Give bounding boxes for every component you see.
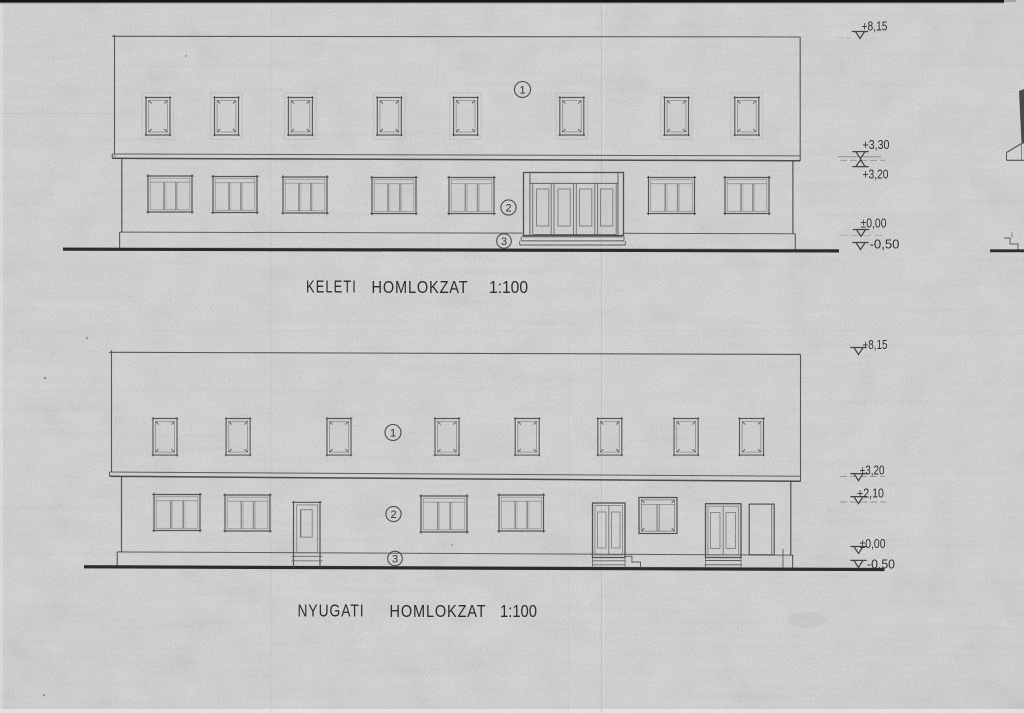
svg-text:NYUGATI: NYUGATI (298, 601, 365, 621)
svg-text:-0,50: -0,50 (867, 556, 895, 571)
svg-text:±0,00: ±0,00 (861, 215, 887, 230)
svg-text:-0,50: -0,50 (870, 237, 900, 252)
svg-text:3: 3 (501, 236, 507, 248)
svg-text:KELETI: KELETI (306, 277, 357, 297)
svg-text:1:100: 1:100 (500, 601, 537, 621)
svg-text:3: 3 (392, 553, 398, 565)
svg-text:1: 1 (390, 427, 396, 439)
svg-text:2: 2 (390, 509, 396, 521)
svg-text:HOMLOKZAT: HOMLOKZAT (372, 277, 469, 297)
svg-text:1:100: 1:100 (489, 277, 528, 297)
svg-text:+2,10: +2,10 (857, 486, 884, 501)
svg-text:1: 1 (519, 84, 525, 96)
svg-text:+8,15: +8,15 (863, 337, 888, 352)
svg-text:+3,20: +3,20 (863, 167, 889, 182)
svg-text:+8,15: +8,15 (862, 19, 888, 34)
svg-text:+3,20: +3,20 (860, 463, 885, 478)
svg-text:2: 2 (505, 202, 511, 214)
svg-text:+3,30: +3,30 (863, 137, 890, 152)
svg-text:±0,00: ±0,00 (860, 536, 886, 551)
svg-text:HOMLOKZAT: HOMLOKZAT (390, 601, 487, 621)
